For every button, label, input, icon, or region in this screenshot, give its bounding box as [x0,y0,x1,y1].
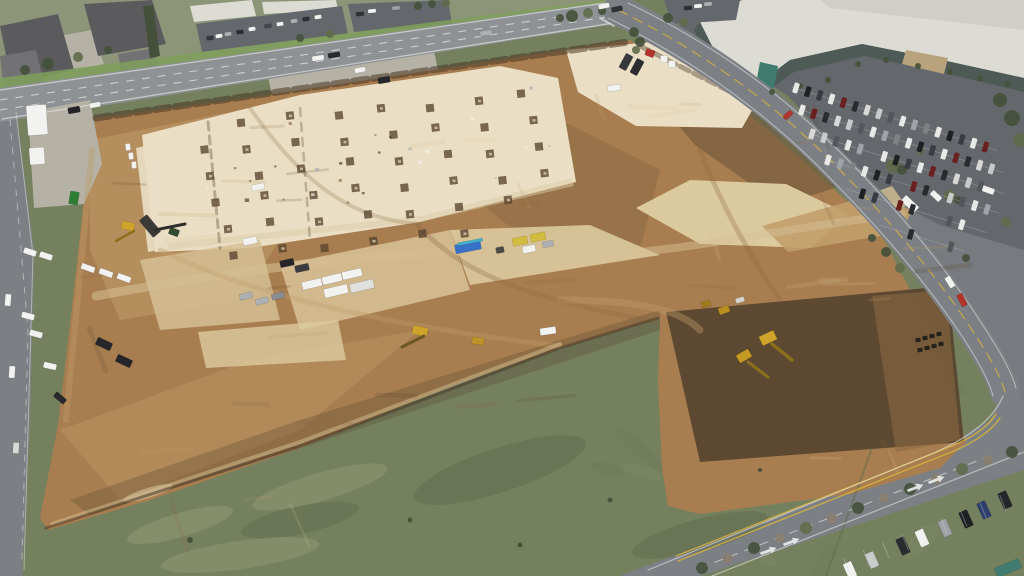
tree [1004,110,1020,126]
dirt-streak [223,181,264,182]
tree [881,247,891,257]
tree [414,2,422,10]
parked-car [290,19,297,24]
pad-debris [311,193,314,196]
tree [775,533,785,543]
column-footing [237,118,246,127]
column-footing [418,229,427,238]
tree [42,58,54,70]
pad-debris [292,122,294,124]
column-footing [200,145,209,154]
pad-debris [525,146,528,148]
dirt-streak [628,106,676,108]
pad-debris [206,187,208,189]
tree [827,513,837,523]
column-footing [291,138,300,147]
dirt-streak [160,214,216,216]
dirt-streak [466,140,493,141]
column-footing [444,150,453,159]
tree [187,537,193,543]
tree [883,57,889,63]
footing-center [246,148,249,151]
tree [408,518,413,523]
footing-center [289,115,292,118]
parked-car [206,36,213,41]
footing-center [209,175,212,178]
tree [983,455,993,465]
tree [1006,446,1018,458]
tree [748,542,760,554]
tree [566,10,578,22]
pad-debris [315,168,319,171]
column-footing [535,142,544,151]
pallet [936,332,942,337]
column-footing [400,183,409,192]
dirt-streak [251,126,283,128]
tree [723,553,733,563]
parked-car [236,30,243,35]
white-unit [669,61,676,68]
column-footing [335,111,344,120]
pad-debris [339,162,342,165]
pad-debris [234,167,237,169]
dirt-streak [520,203,540,204]
pad-debris [378,152,381,154]
storage-trailer [29,147,45,165]
porta-unit [125,143,131,150]
dark-equipment [496,246,505,253]
tree [758,468,762,472]
tree [800,522,812,534]
dirt-streak [689,285,736,288]
car-on-road [13,442,20,453]
footing-center [544,172,547,175]
pad-debris [495,177,497,179]
car-on-road [4,294,11,306]
tree [915,63,921,69]
footing-center [533,119,536,122]
parked-car [314,15,321,20]
footing-center [453,180,456,183]
footing-center [380,107,383,110]
tree [879,493,889,503]
office-trailer [26,104,48,135]
dirt-streak [796,142,818,143]
footing-center [489,153,492,156]
parked-car [215,34,222,39]
pad-debris [548,145,550,147]
pad-debris [408,148,411,151]
porta-unit [131,161,137,168]
aerial-photo-stage [0,0,1024,576]
pallet [931,344,937,349]
pallet [917,348,923,353]
pad-debris [347,202,350,204]
pad-debris [425,150,429,153]
parked-car [392,6,400,11]
dirt-streak [277,200,301,201]
green-tractor [68,191,79,205]
pallet [922,336,928,341]
pad-debris [375,134,377,136]
pad-debris [282,199,284,201]
dirt-streak [526,280,576,283]
tree [680,18,688,26]
column-footing [255,171,264,180]
car-on-road [9,366,16,378]
dozer [472,337,485,346]
parked-car [224,32,231,37]
dirt-streak [773,312,816,313]
pad-debris [471,118,474,121]
pad-debris [362,192,365,194]
column-footing [320,244,329,253]
parked-car [694,4,702,9]
column-footing [229,251,238,260]
footing-center [373,240,376,243]
column-footing [346,157,355,166]
dirt-streak [269,286,289,288]
tree [977,75,983,81]
pad-debris [339,179,342,182]
footing-center [300,168,303,171]
parked-car [356,12,364,17]
column-footing [517,89,526,98]
tree [868,234,876,242]
pad-debris [529,87,533,90]
tree [518,543,523,548]
dirt-streak [811,458,841,459]
parked-car [248,27,255,32]
pad-debris [249,180,251,182]
footing-center [344,141,347,144]
tree [20,65,30,75]
dirt-streak [904,247,955,249]
tree [769,89,775,95]
tree [956,463,968,475]
tree [825,77,831,83]
pad-debris [274,166,276,168]
tree [296,34,304,42]
column-footing [426,104,435,113]
tree [326,30,334,38]
aerial-photograph [0,0,1024,576]
tree [696,562,708,574]
parked-car [368,9,376,14]
dirt-streak [870,298,890,300]
footing-center [318,221,321,224]
pad-debris [418,161,422,164]
northeast-corner-lot [664,0,740,24]
dirt-streak [455,405,497,407]
column-footing [498,176,507,185]
dirt-streak [298,422,352,424]
tree [73,52,83,62]
parked-car [704,2,712,7]
tree [104,46,112,54]
dirt-streak [233,403,268,404]
tree [993,93,1007,107]
pallet [938,342,944,347]
footing-center [409,213,412,216]
tree [608,498,613,503]
footing-center [355,187,358,190]
tree [962,254,970,262]
dirt-streak [842,207,875,209]
tree [852,502,864,514]
tree [1005,81,1011,87]
footing-center [282,247,285,250]
column-footing [480,123,489,132]
parked-car [684,6,692,11]
tree [635,37,645,47]
tree [663,13,673,23]
footing-center [227,228,230,231]
pad-debris [389,136,392,138]
parked-car [264,24,271,29]
column-footing [211,198,220,207]
footing-center [398,160,401,163]
footing-center [478,100,481,103]
footing-center [435,127,438,130]
tree [556,14,564,22]
porta-unit [128,152,134,159]
tree [855,61,861,67]
tree [428,0,436,8]
parked-car [302,17,309,22]
tree [583,8,593,18]
tree [895,263,905,273]
pallet [924,346,930,351]
pallet [929,334,935,339]
pad-debris [245,198,250,202]
tree [632,46,640,54]
footing-center [464,233,467,236]
white-unit [661,56,668,63]
dirt-streak [112,183,145,184]
footing-center [507,199,510,202]
parked-car [276,22,283,27]
dirt-streak [377,395,416,396]
tree [1001,217,1011,227]
footing-center [264,194,267,197]
dirt-streak [824,283,875,284]
column-footing [455,203,464,212]
column-footing [364,210,373,219]
column-footing [266,217,275,226]
tree [947,69,953,75]
tree [629,27,639,37]
pallet [915,338,921,343]
